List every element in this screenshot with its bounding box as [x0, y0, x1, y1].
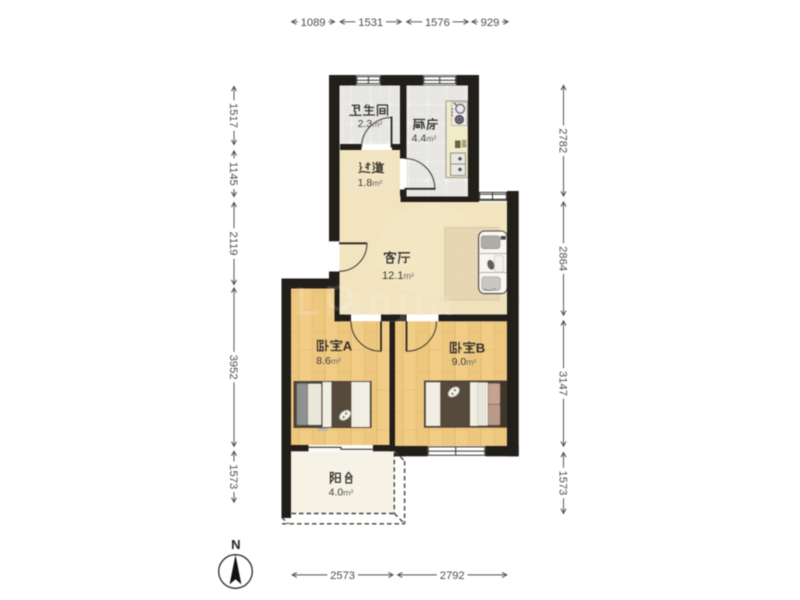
- svg-text:1.8m²: 1.8m²: [358, 177, 383, 189]
- svg-text:3952: 3952: [227, 355, 239, 380]
- svg-text:Lianjia: Lianjia: [295, 280, 457, 324]
- svg-text:N: N: [231, 537, 240, 552]
- svg-text:A: A: [343, 339, 353, 354]
- svg-text:12.1m²: 12.1m²: [382, 270, 414, 282]
- svg-text:2864: 2864: [557, 246, 569, 271]
- svg-text:B: B: [476, 341, 485, 356]
- svg-text:1089: 1089: [301, 17, 326, 29]
- svg-text:1145: 1145: [227, 162, 239, 186]
- svg-text:8.6m²: 8.6m²: [316, 355, 341, 367]
- svg-text:2792: 2792: [440, 570, 465, 582]
- svg-text:1573: 1573: [227, 464, 239, 489]
- svg-text:3147: 3147: [557, 371, 569, 396]
- svg-text:2573: 2573: [330, 570, 355, 582]
- svg-text:2119: 2119: [227, 231, 239, 255]
- svg-text:9.0m²: 9.0m²: [452, 356, 477, 368]
- svg-text:929: 929: [481, 17, 500, 29]
- svg-text:1531: 1531: [358, 17, 383, 29]
- svg-text:2.3m²: 2.3m²: [358, 118, 383, 130]
- svg-text:2782: 2782: [557, 128, 569, 153]
- svg-text:4.4m²: 4.4m²: [412, 133, 437, 145]
- svg-text:1517: 1517: [227, 103, 239, 128]
- svg-text:1576: 1576: [425, 17, 450, 29]
- svg-text:1573: 1573: [557, 471, 569, 496]
- svg-text:4.0m²: 4.0m²: [329, 487, 354, 499]
